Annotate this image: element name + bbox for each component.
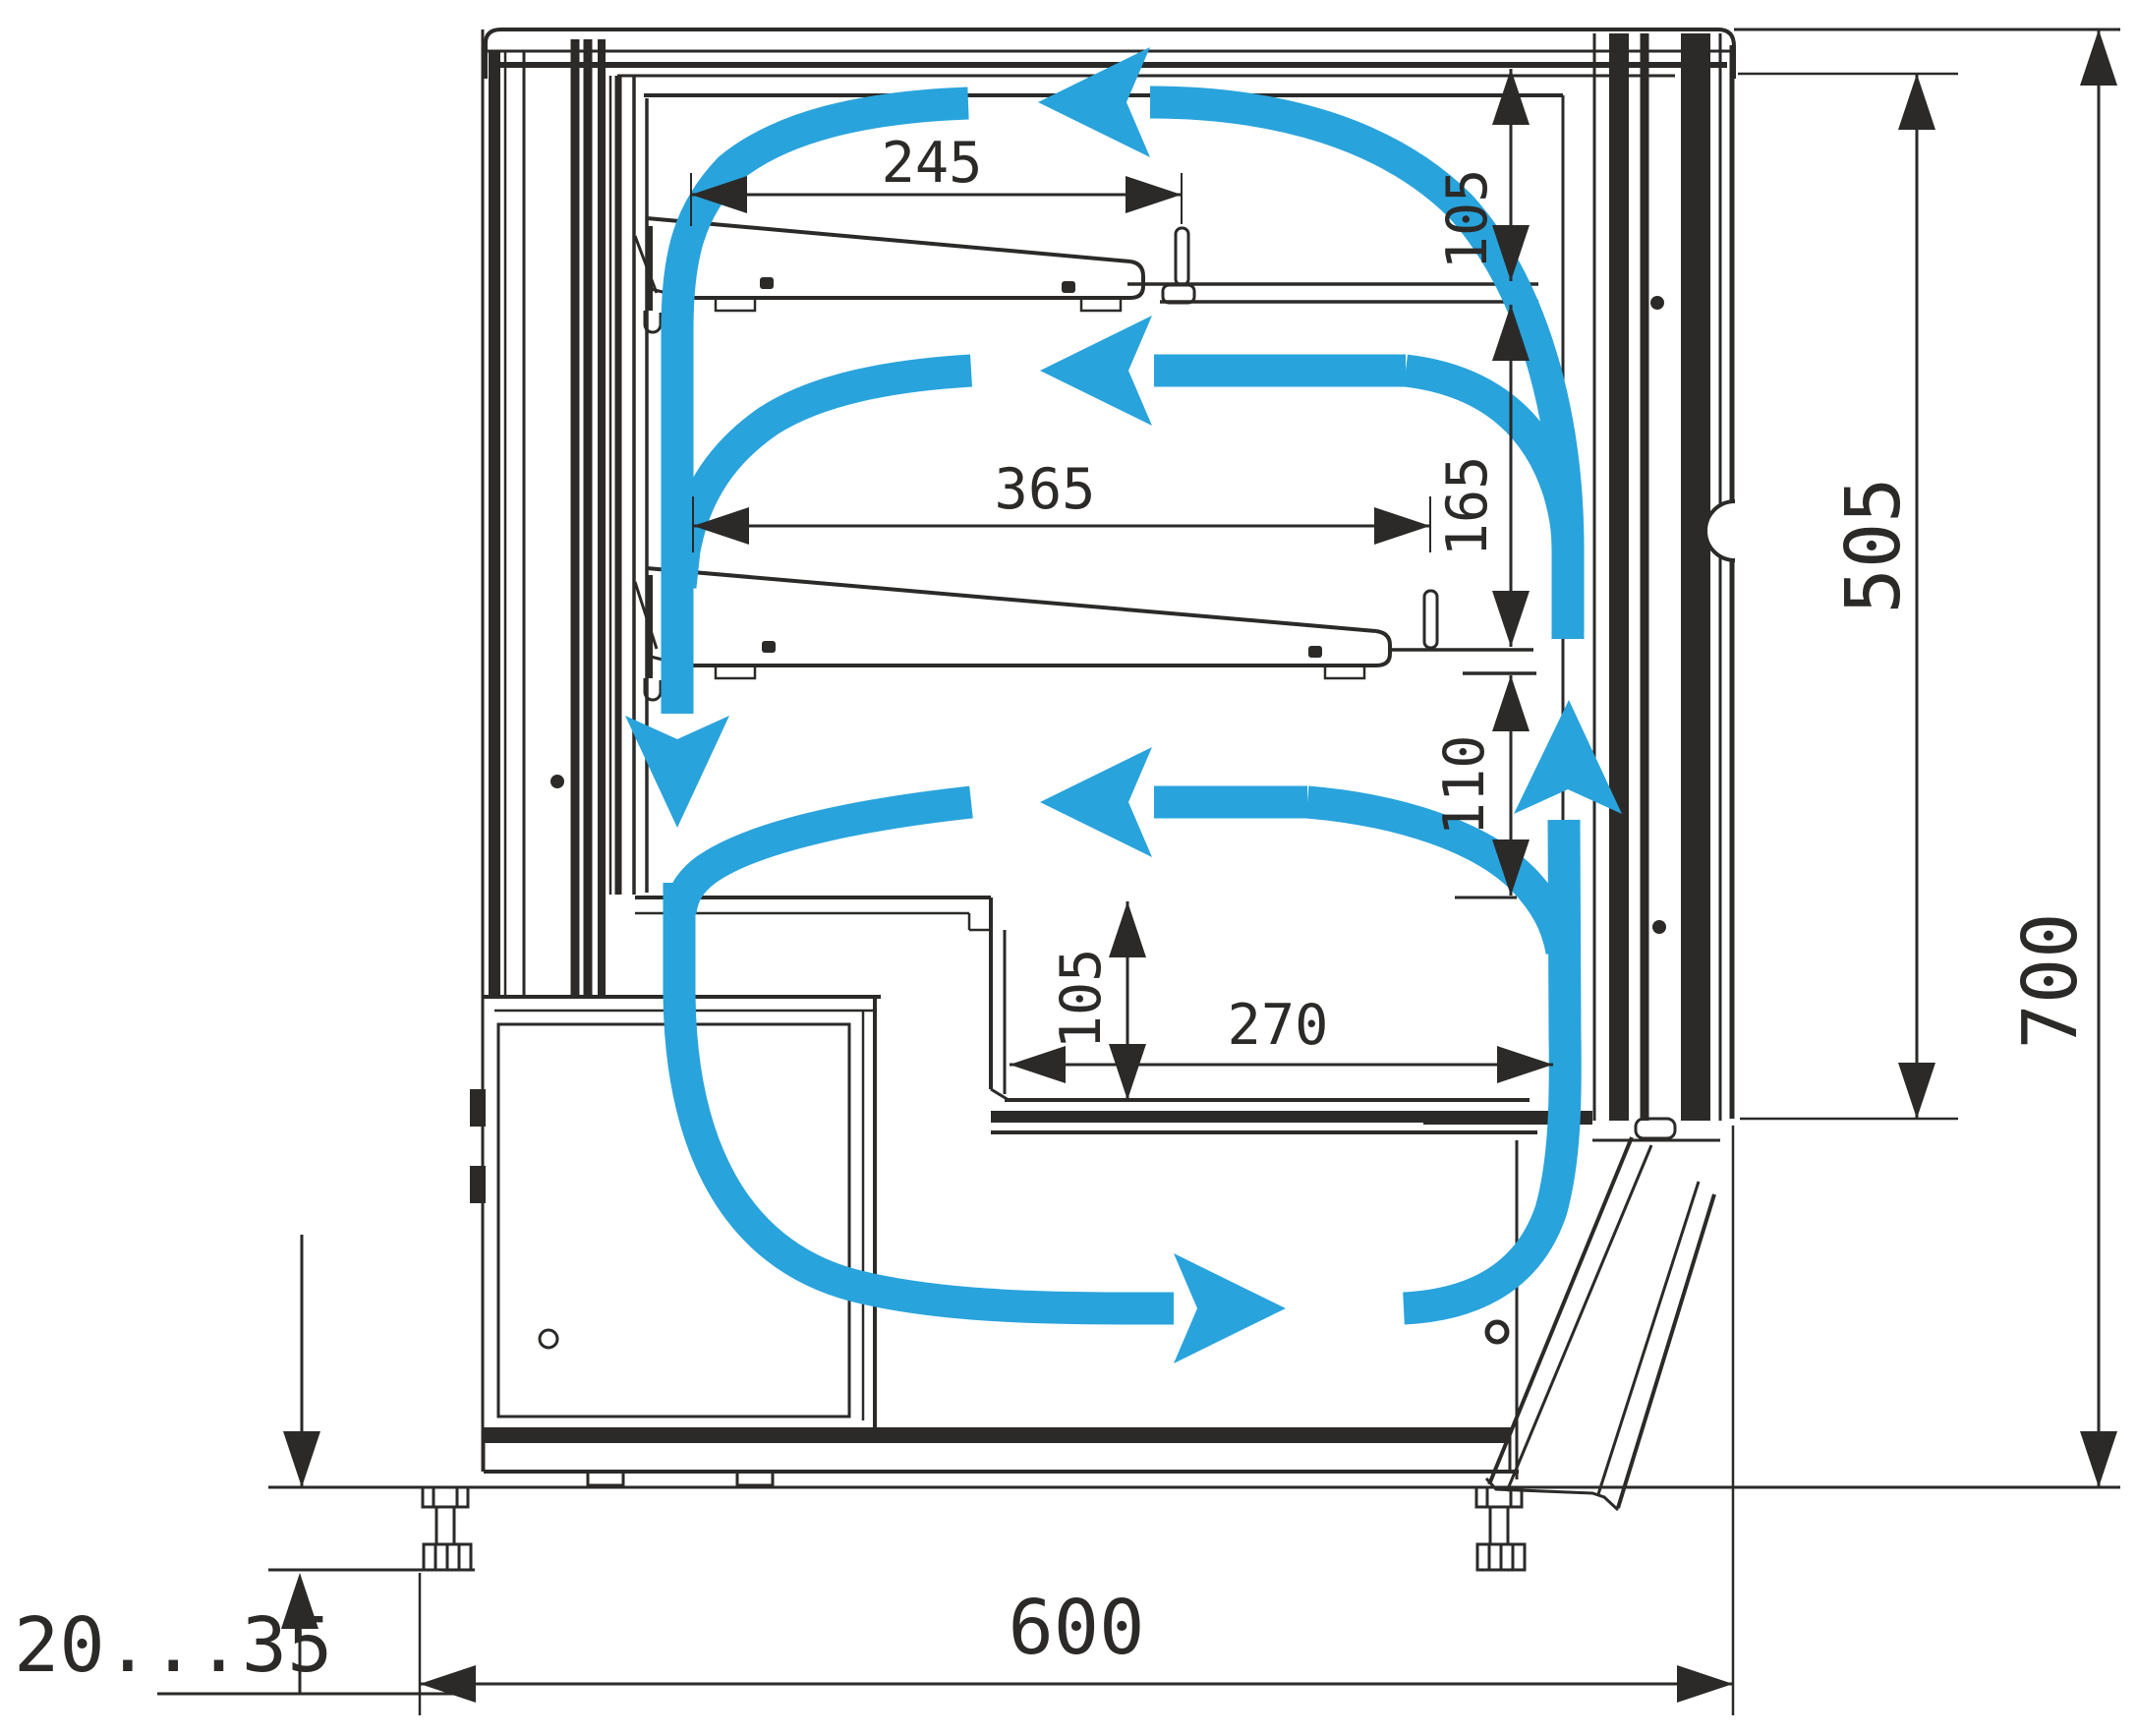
dim-105-top: 105 [1435, 69, 1530, 281]
dim-365: 365 [693, 457, 1430, 552]
dim-label-700: 700 [2007, 912, 2095, 1049]
chassis [484, 1427, 1519, 1472]
dim-label-600: 600 [1008, 1585, 1144, 1672]
canopy [486, 29, 2120, 95]
left-arrowhead [1040, 747, 1152, 857]
dim-label-505: 505 [1830, 477, 1918, 613]
bottom-duct-arrow [679, 883, 1174, 1308]
dim-label-feet-adjust: 20...35 [14, 1602, 333, 1690]
rear-wall [483, 29, 647, 1472]
dim-165: 165 [1435, 305, 1530, 647]
shelf-upper [635, 218, 1538, 332]
dim-feet-adjust: 20...35 [14, 1235, 475, 1694]
dim-505: 505 [1738, 74, 1958, 1119]
shelf-post [1424, 591, 1437, 648]
dim-label-110: 110 [1432, 735, 1497, 837]
hinge [470, 1089, 486, 1127]
dim-label-105-well: 105 [1049, 949, 1114, 1050]
dim-label-165: 165 [1435, 456, 1500, 557]
screw [760, 277, 774, 289]
foot-mount [737, 1472, 773, 1485]
door-hole [540, 1330, 557, 1348]
left-arrowhead [1040, 316, 1152, 426]
rivet [1487, 1322, 1507, 1342]
right-arrowhead [1174, 1253, 1286, 1363]
dim-label-365: 365 [995, 457, 1096, 522]
display-case-cross-section: 245 105 365 165 110 [0, 0, 2137, 1736]
glass-pivot [1636, 1119, 1675, 1138]
left-foot [423, 1487, 471, 1570]
drawing-canvas: 245 105 365 165 110 [0, 0, 2137, 1736]
dim-label-245: 245 [882, 131, 983, 196]
up-arrowhead [1514, 700, 1622, 814]
shelf-post [1176, 228, 1188, 285]
rivet [1650, 296, 1664, 310]
mid-merge-curve [680, 371, 971, 587]
down-arrowhead [625, 716, 729, 828]
foot-mount [588, 1472, 623, 1485]
screw [1308, 646, 1322, 658]
dim-label-270: 270 [1228, 993, 1329, 1058]
shelf-middle [635, 568, 1533, 700]
right-foot [1476, 1487, 1525, 1570]
rivet [1652, 920, 1666, 934]
rivet [550, 775, 564, 788]
dim-700: 700 [2007, 29, 2117, 1487]
screw [762, 641, 776, 653]
front-bumper-panel [1486, 1137, 1714, 1510]
screw [1062, 281, 1075, 293]
hinge [470, 1166, 486, 1203]
dim-label-105-top: 105 [1435, 169, 1500, 270]
